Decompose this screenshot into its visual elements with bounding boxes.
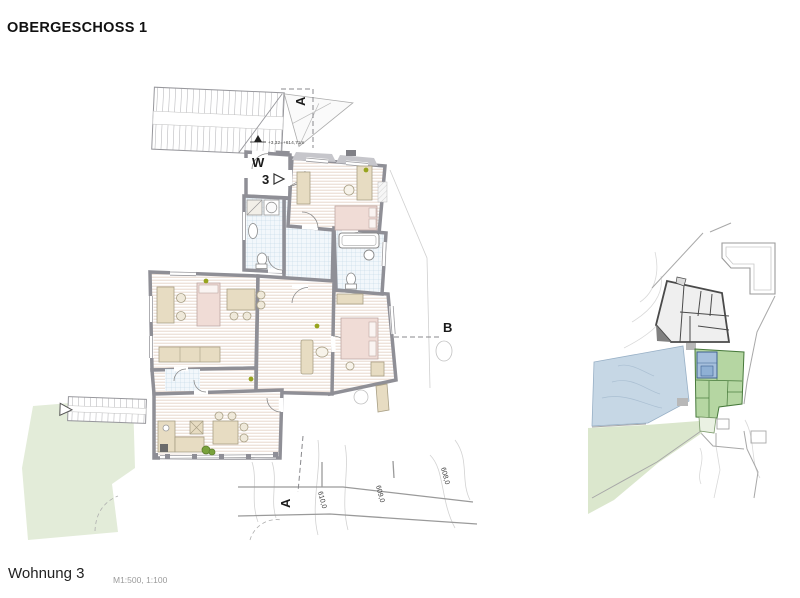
site-plan xyxy=(588,223,775,514)
side-table xyxy=(344,185,354,195)
sofa xyxy=(301,340,313,374)
wardrobe xyxy=(297,172,310,204)
vestibule-tile-patch xyxy=(165,369,200,391)
side-table xyxy=(346,362,354,370)
plan-drawing: 610,0 609,0 608,0 xyxy=(0,0,800,598)
plant xyxy=(209,449,215,455)
scale-note: M1:500, 1:100 xyxy=(113,575,167,585)
chair xyxy=(240,423,248,431)
chair xyxy=(177,312,186,321)
wardrobe xyxy=(337,294,363,304)
washbasin xyxy=(364,250,374,260)
coffee-table xyxy=(316,347,328,357)
sideboard xyxy=(159,347,220,362)
bench xyxy=(371,362,384,376)
chair xyxy=(228,412,236,420)
apartment-marker-3: 3 xyxy=(262,172,269,187)
dining-table xyxy=(213,421,238,444)
toilet xyxy=(347,273,356,285)
contour-label-609: 609,0 xyxy=(374,485,385,504)
site-water-area xyxy=(592,346,689,426)
site-neighbor-building xyxy=(722,243,775,294)
chair xyxy=(177,294,186,303)
apartment-marker-w: W xyxy=(252,155,265,170)
site-green-area xyxy=(588,421,702,514)
washbasin xyxy=(249,224,258,239)
main-floor-plan: 610,0 609,0 608,0 xyxy=(22,87,477,540)
table xyxy=(227,289,255,310)
page-title: OBERGESCHOSS 1 xyxy=(7,20,147,36)
chair xyxy=(215,412,223,420)
property-line xyxy=(390,170,430,388)
chair xyxy=(240,434,248,442)
section-marker-b: B xyxy=(443,320,452,335)
chair xyxy=(257,301,265,309)
contour-label-610: 610,0 xyxy=(316,491,327,510)
section-marker-a-bottom: A xyxy=(278,498,293,508)
site-existing-building xyxy=(656,277,729,342)
toilet xyxy=(257,253,267,265)
elevation-label: +3,32=+614,71m xyxy=(268,140,304,146)
sink xyxy=(163,425,169,431)
drawing-sheet: OBERGESCHOSS 1 xyxy=(0,0,800,598)
stove xyxy=(160,444,168,452)
section-line-b: B xyxy=(394,320,452,337)
desk xyxy=(157,287,174,323)
section-marker-a-top: A xyxy=(293,96,308,106)
apartment-title: Wohnung 3 xyxy=(8,565,84,582)
kitchen-counter xyxy=(175,437,204,452)
contour-label-608: 608,0 xyxy=(439,467,450,486)
chair xyxy=(257,291,265,299)
exterior-staircase xyxy=(60,396,147,423)
site-connector xyxy=(677,398,688,406)
chair xyxy=(230,312,238,320)
chair xyxy=(243,312,251,320)
site-apartment-highlight xyxy=(695,349,744,433)
